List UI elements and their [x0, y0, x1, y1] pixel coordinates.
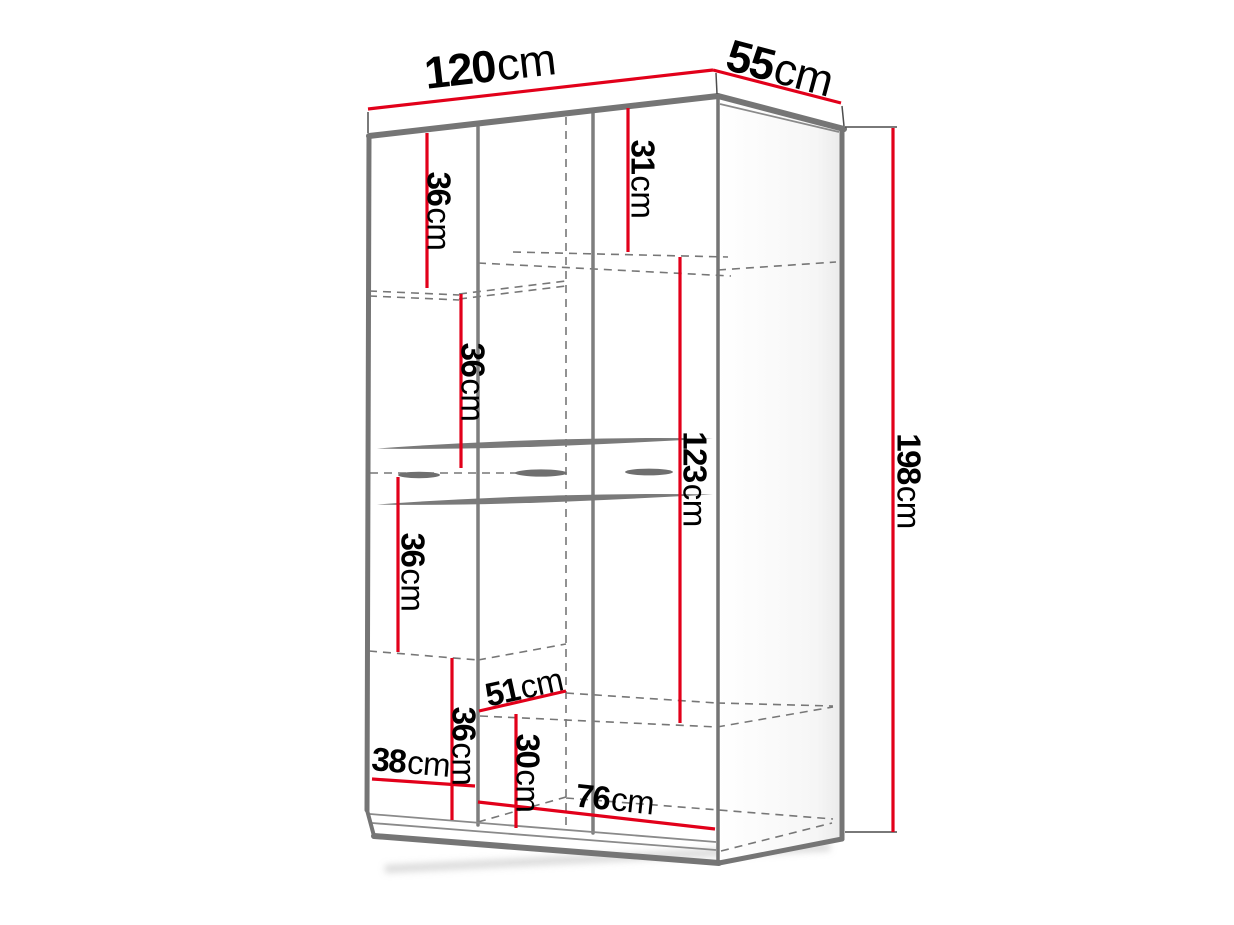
- wardrobe-line-drawing: [0, 0, 1234, 925]
- side-panel-shading: [718, 96, 844, 862]
- dim-line-51: [479, 691, 566, 711]
- handle-cutouts: [398, 469, 673, 479]
- dim-line-38: [372, 779, 475, 786]
- wardrobe-dimension-diagram: 120cm 55cm 198cm 36cm 31cm 36cm 123cm 36…: [0, 0, 1234, 925]
